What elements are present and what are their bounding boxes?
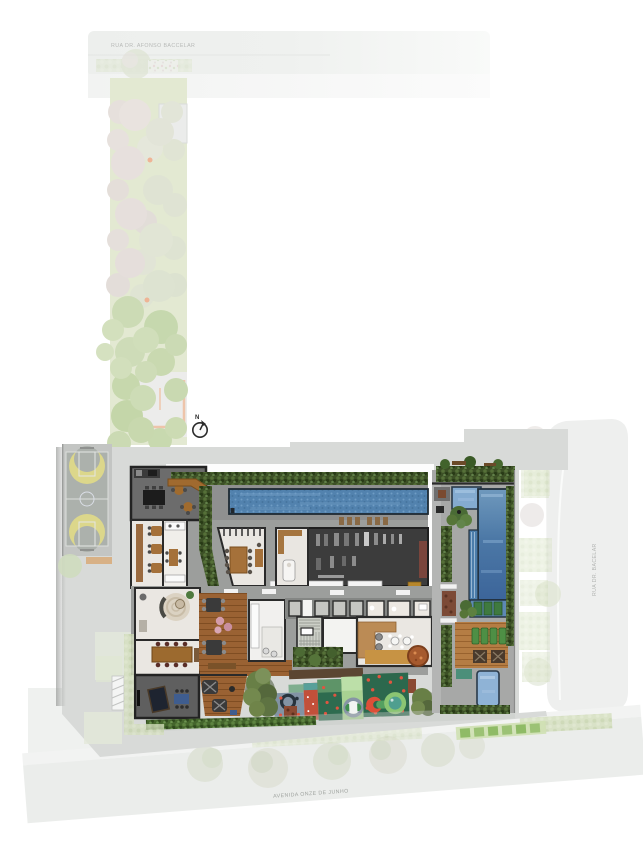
svg-text:N: N: [195, 415, 199, 421]
svg-text:RUA DR. BACELAR: RUA DR. BACELAR: [592, 543, 598, 596]
svg-text:RUA DR. AFONSO BACCELAR: RUA DR. AFONSO BACCELAR: [111, 43, 195, 49]
